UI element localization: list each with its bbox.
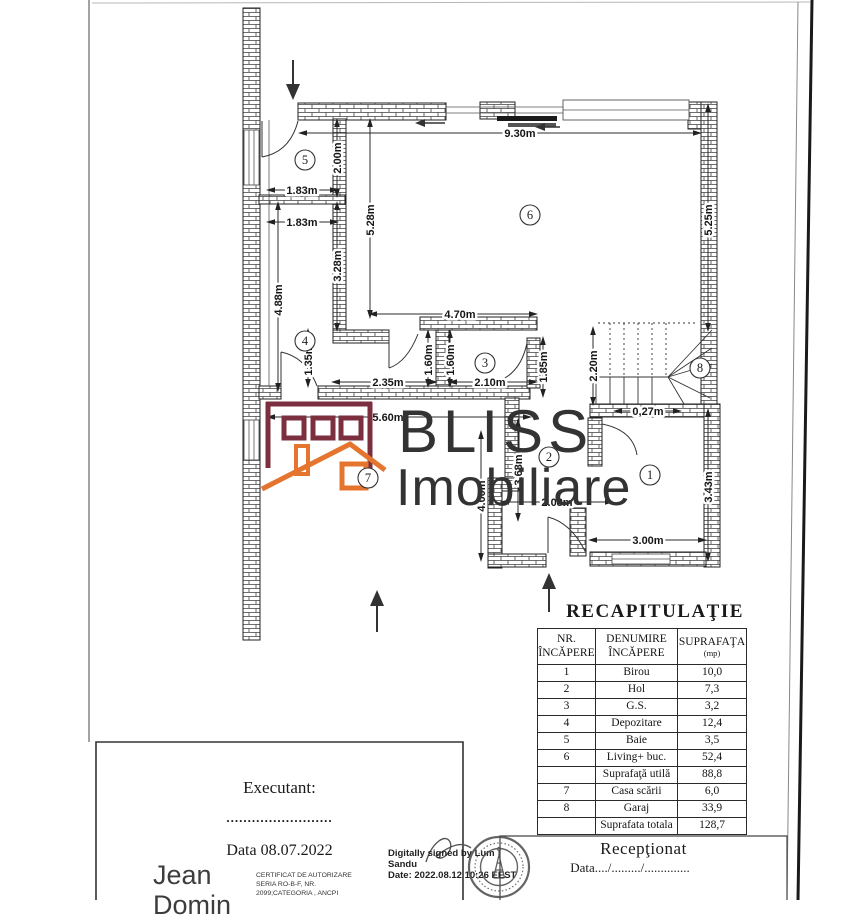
logo-subtitle: Imobiliare — [396, 459, 631, 517]
signer-name-line2: Domin — [153, 890, 231, 921]
svg-text:1: 1 — [647, 468, 653, 482]
dim-label: 5.25m — [703, 204, 715, 235]
table-row: 2Hol7,3 — [538, 682, 747, 699]
room-label-7: 7 — [358, 468, 378, 488]
window-left-upper — [244, 130, 259, 185]
window-bottom-right — [612, 554, 670, 564]
dim-label: 9.30m — [504, 128, 535, 140]
table-row: 7Casa scării6,0 — [538, 784, 747, 801]
executant-label: Executant: — [96, 778, 463, 798]
certificate-text: CERTIFICAT DE AUTORIZARE SERIA RO-B-F, N… — [256, 872, 396, 898]
dim-label: 2.10m — [474, 377, 505, 389]
svg-text:6: 6 — [527, 208, 533, 222]
table-row: 3G.S.3,2 — [538, 699, 747, 716]
table-row: 1Birou10,0 — [538, 665, 747, 682]
receptionat-title: Recepţionat — [500, 839, 787, 859]
room-label-8: 8 — [690, 358, 710, 378]
window-left-lower — [244, 420, 259, 460]
svg-text:7: 7 — [365, 471, 371, 485]
logo-building-outline — [266, 402, 372, 480]
svg-text:8: 8 — [697, 361, 703, 375]
recap-header-row: NR. ÎNCĂPERE DENUMIRE ÎNCĂPERE SUPRAFAŢA… — [538, 629, 747, 665]
dim-label: 4.88m — [273, 284, 285, 315]
scanned-floor-plan-document: { "logo": { "title": "BLISS", "subtitle"… — [0, 0, 845, 900]
table-row: 5Baie3,5 — [538, 733, 747, 750]
svg-text:2: 2 — [546, 450, 552, 464]
dim-label: 2.35m — [372, 377, 403, 389]
dim-label: 1.83m — [286, 217, 317, 229]
recap-table: NR. ÎNCĂPERE DENUMIRE ÎNCĂPERE SUPRAFAŢA… — [537, 628, 747, 835]
executant-signature-dots: ......................... — [96, 810, 463, 826]
table-row: 8Garaj33,9 — [538, 801, 747, 818]
col-header-suprafata: SUPRAFAŢA (mp) — [678, 629, 747, 665]
receptionat-date-line: Data..../........./.............. — [500, 860, 760, 876]
svg-text:4: 4 — [302, 334, 309, 348]
dim-label: 2.00m — [332, 142, 344, 173]
room-label-2: 2 — [539, 447, 559, 467]
svg-text:5: 5 — [302, 153, 308, 167]
table-row: Suprafata totala128,7 — [538, 818, 747, 835]
dim-label: 3.28m — [332, 250, 344, 281]
col-header-nr: NR. ÎNCĂPERE — [538, 629, 596, 665]
dim-label: 2.20m — [588, 350, 600, 381]
logo-title: BLISS — [398, 398, 593, 465]
entrance-arrow-bottom-right — [542, 573, 556, 612]
room-label-3: 3 — [475, 353, 495, 373]
recap-title: RECAPITULAŢIE — [560, 601, 750, 623]
dim-label: 1.85m — [538, 351, 550, 382]
signer-name-line1: Jean — [153, 860, 212, 891]
stamp-tower-emblem — [494, 848, 505, 879]
dim-label: 4.70m — [444, 309, 475, 321]
dim-label: 0,27m — [632, 406, 663, 418]
entrance-arrow-bottom-left — [370, 590, 384, 632]
col-header-denumire: DENUMIRE ÎNCĂPERE — [596, 629, 678, 665]
dim-label: 3.43m — [703, 471, 715, 502]
dim-label: 1.60m — [423, 344, 435, 375]
round-stamp-seal — [462, 830, 536, 904]
dim-label: 1.83m — [286, 185, 317, 197]
room-label-1: 1 — [640, 465, 660, 485]
entrance-arrow-top — [286, 60, 300, 100]
window-top-right — [563, 100, 689, 120]
svg-text:3: 3 — [482, 356, 488, 370]
dim-label: 5.28m — [365, 204, 377, 235]
room-label-4: 4 — [295, 331, 315, 351]
room-label-5: 5 — [295, 150, 315, 170]
table-row: Suprafaţă utilă88,8 — [538, 767, 747, 784]
table-row: 6Living+ buc.52,4 — [538, 750, 747, 767]
bliss-logo: BLISS Imobiliare — [262, 398, 631, 517]
room-label-6: 6 — [520, 205, 540, 225]
dim-label: 1.60m — [445, 344, 457, 375]
table-row: 4Depozitare12,4 — [538, 716, 747, 733]
dim-label: 3.00m — [632, 535, 663, 547]
